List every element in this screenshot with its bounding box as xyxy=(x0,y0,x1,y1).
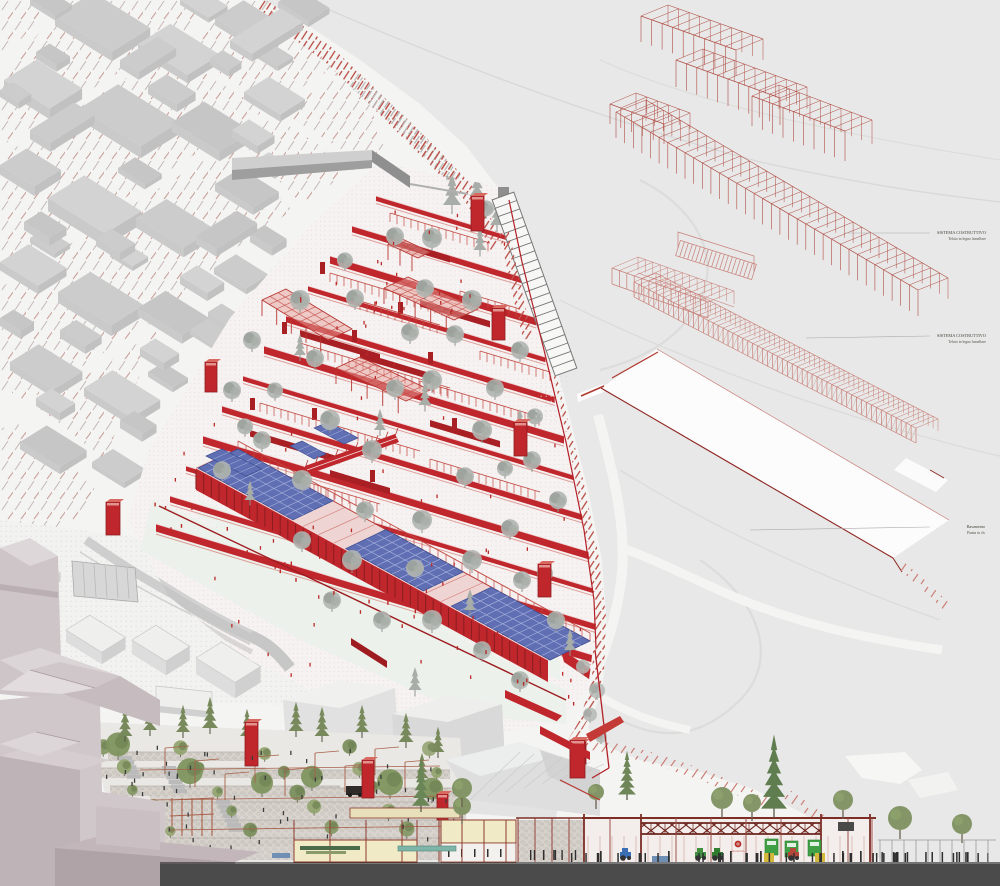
svg-text:Telaio in legno lamellare: Telaio in legno lamellare xyxy=(948,340,986,344)
svg-text:BRANDOTA: BRANDOTA xyxy=(731,850,744,853)
svg-text:SISTEMA COSTRUTTIVO: SISTEMA COSTRUTTIVO xyxy=(937,333,986,338)
svg-text:Basamento: Basamento xyxy=(967,524,985,529)
svg-text:SISTEMA COSTRUTTIVO: SISTEMA COSTRUTTIVO xyxy=(937,230,986,235)
svg-text:Telaio in legno lamellare: Telaio in legno lamellare xyxy=(948,237,986,241)
svg-text:Pianta in cls: Pianta in cls xyxy=(967,531,986,535)
